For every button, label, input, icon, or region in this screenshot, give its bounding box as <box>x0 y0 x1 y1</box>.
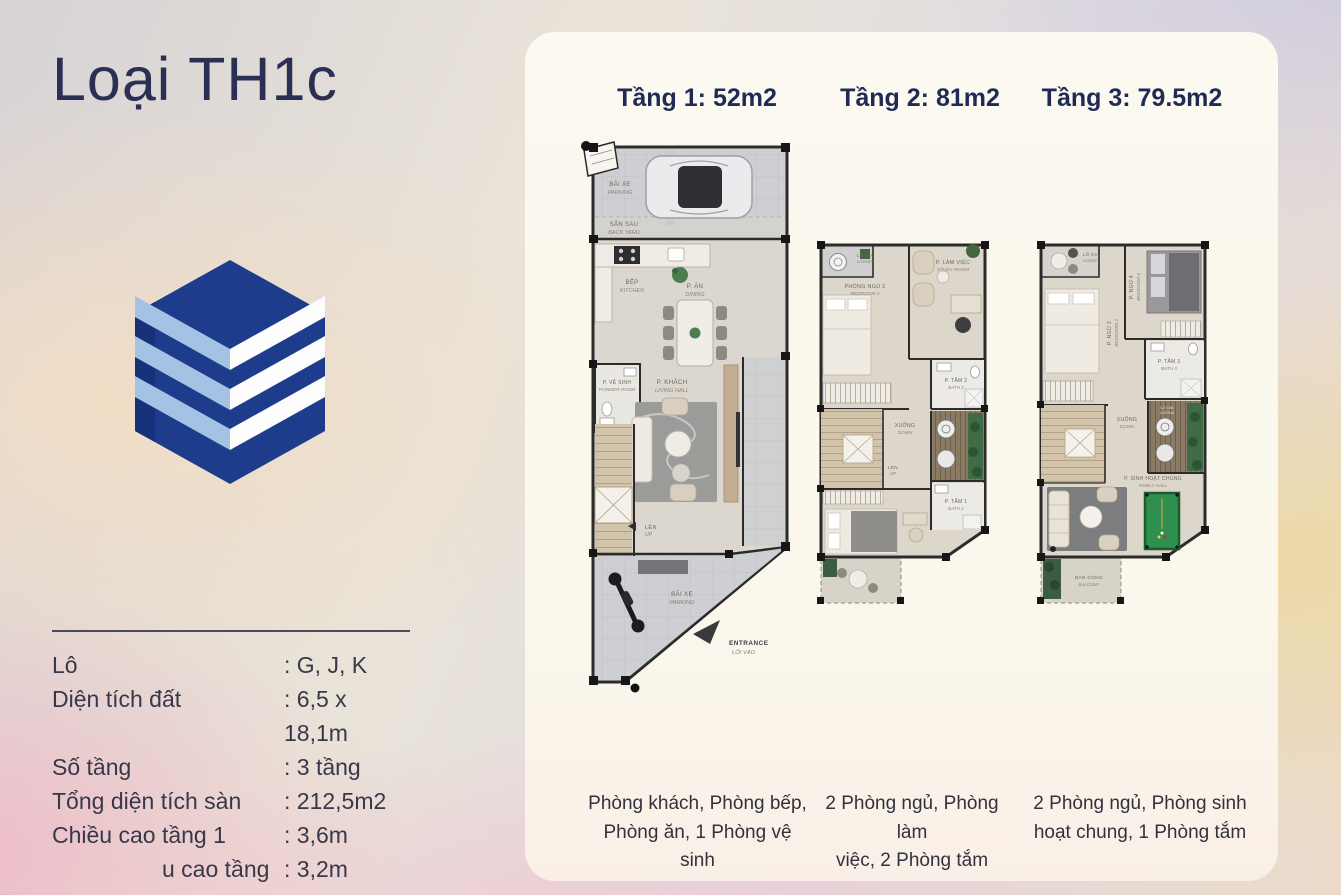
svg-text:P. TẮM 2: P. TẮM 2 <box>945 376 968 384</box>
svg-text:PARKING: PARKING <box>608 190 633 196</box>
svg-text:BATH 3: BATH 3 <box>1161 366 1177 371</box>
svg-text:P. TẮM 1: P. TẮM 1 <box>945 497 968 505</box>
svg-text:UP: UP <box>890 471 896 476</box>
spec-row-floors: Số tầng : 3 tầng <box>52 750 412 784</box>
brochure-page: { "page": { "title": "Loại TH1c" }, "col… <box>0 0 1341 895</box>
floor-title-2: Tầng 2: 81m2 <box>820 84 1020 113</box>
svg-text:BATH 2: BATH 2 <box>948 385 964 390</box>
svg-text:P. VỆ SINH: P. VỆ SINH <box>603 378 632 386</box>
svg-text:P. NGỦ 4: P. NGỦ 4 <box>1128 275 1135 299</box>
svg-text:LÔ GIA: LÔ GIA <box>857 253 873 258</box>
floor-plan-1: BÃI XE PARKING SÂN SAU BACK YARD BẾP KIT… <box>580 132 800 717</box>
svg-text:PHÒNG NGỦ 2: PHÒNG NGỦ 2 <box>844 283 885 290</box>
floor-plan-3: LÔ GIA LOGGIA P. NGỦ 3 BEDROOM 3 P. NGỦ … <box>1033 237 1218 667</box>
svg-text:BẾP: BẾP <box>626 279 639 286</box>
floor-title-3: Tầng 3: 79.5m2 <box>1022 84 1242 113</box>
svg-text:P. LÀM VIỆC: P. LÀM VIỆC <box>936 258 970 266</box>
stairs <box>1041 405 1105 483</box>
svg-text:LIVING HALL: LIVING HALL <box>655 388 689 394</box>
svg-text:FAMILY HALL: FAMILY HALL <box>1139 483 1168 488</box>
spec-table: Lô : G, J, K Diện tích đất : 6,5 x 18,1m… <box>52 630 412 895</box>
svg-text:DOWN: DOWN <box>898 430 913 435</box>
svg-text:BATH 1: BATH 1 <box>948 506 964 511</box>
spec-row-total-floor-area: Tổng diện tích sàn : 212,5m2 <box>52 784 412 818</box>
floor-caption-2: 2 Phòng ngủ, Phòng làm việc, 2 Phòng tắm <box>812 790 1012 876</box>
spec-row-height-f23: u cao tầng 2, 3 : 3,2m <box>52 852 412 895</box>
svg-text:BEDROOM 3: BEDROOM 3 <box>1114 319 1119 347</box>
svg-text:POWDER ROOM: POWDER ROOM <box>599 387 635 392</box>
svg-text:BÃI XE: BÃI XE <box>671 591 693 598</box>
svg-text:SÂN SAU: SÂN SAU <box>610 221 638 228</box>
svg-text:PARKING: PARKING <box>670 600 695 606</box>
floor-plan-2: LÔ GIA LOGGIA PHÒNG NGỦ 2 BEDROOM 2 P. L… <box>813 237 998 667</box>
svg-text:P. TẮM 3: P. TẮM 3 <box>1158 357 1181 365</box>
svg-text:DOWN: DOWN <box>1120 424 1135 429</box>
svg-text:LOGGIA: LOGGIA <box>1083 258 1099 263</box>
bath2 <box>931 359 985 409</box>
spec-row-land-area: Diện tích đất : 6,5 x 18,1m <box>52 682 412 750</box>
svg-text:P. NGỦ 3: P. NGỦ 3 <box>1106 321 1113 345</box>
svg-text:XUỐNG: XUỐNG <box>895 422 916 429</box>
svg-text:LOGGIA: LOGGIA <box>857 259 873 264</box>
svg-text:BEDROOM 2: BEDROOM 2 <box>851 291 880 297</box>
svg-text:ENTRANCE: ENTRANCE <box>729 640 769 647</box>
floor-caption-1: Phòng khách, Phòng bếp, Phòng ăn, 1 Phòn… <box>585 790 810 876</box>
billiard-table <box>1145 493 1179 549</box>
spec-row-height-f1: Chiều cao tầng 1 : 3,6m <box>52 818 412 852</box>
stairs <box>821 409 883 489</box>
page-title: Loại TH1c <box>52 44 338 114</box>
svg-text:P. ĂN: P. ĂN <box>687 283 703 290</box>
family-hall <box>1041 483 1127 552</box>
loggia-laundry-deck <box>1148 401 1205 473</box>
dining-table <box>663 300 727 366</box>
divider <box>52 630 410 632</box>
laundry-deck <box>931 411 985 481</box>
svg-text:BEDROOM 4: BEDROOM 4 <box>1136 273 1141 301</box>
svg-text:DINING: DINING <box>685 292 705 298</box>
spec-row-lot: Lô : G, J, K <box>52 648 412 682</box>
svg-text:LOGGIA: LOGGIA <box>1160 411 1175 415</box>
svg-text:BAN CÔNG: BAN CÔNG <box>1075 574 1103 581</box>
svg-text:UP: UP <box>645 532 653 538</box>
svg-text:LÔ GIA: LÔ GIA <box>1083 252 1099 257</box>
svg-text:BACK YARD: BACK YARD <box>608 230 639 236</box>
car-icon <box>646 150 752 225</box>
svg-text:LÊN: LÊN <box>645 523 657 531</box>
property-card: Tầng 1: 52m2 Tầng 2: 81m2 Tầng 3: 79.5m2 <box>525 32 1278 881</box>
svg-text:P. SINH HOẠT CHUNG: P. SINH HOẠT CHUNG <box>1124 476 1182 482</box>
svg-text:KITCHEN: KITCHEN <box>620 288 644 294</box>
svg-text:STUDY ROOM: STUDY ROOM <box>937 267 969 273</box>
svg-text:P. KHÁCH: P. KHÁCH <box>657 379 688 386</box>
svg-text:LỐI VÀO: LỐI VÀO <box>732 649 756 656</box>
svg-text:XUỐNG: XUỐNG <box>1117 416 1138 423</box>
brand-logo-icon <box>123 256 338 488</box>
floor-caption-3: 2 Phòng ngủ, Phòng sinh hoạt chung, 1 Ph… <box>1032 790 1248 847</box>
terrace <box>817 557 904 604</box>
floor-title-1: Tầng 1: 52m2 <box>587 84 807 113</box>
svg-text:BÃI XE: BÃI XE <box>609 181 630 188</box>
svg-text:BALCONY: BALCONY <box>1079 582 1101 587</box>
svg-text:LÊN: LÊN <box>888 463 898 470</box>
svg-text:LÔ GIA: LÔ GIA <box>1160 405 1174 410</box>
